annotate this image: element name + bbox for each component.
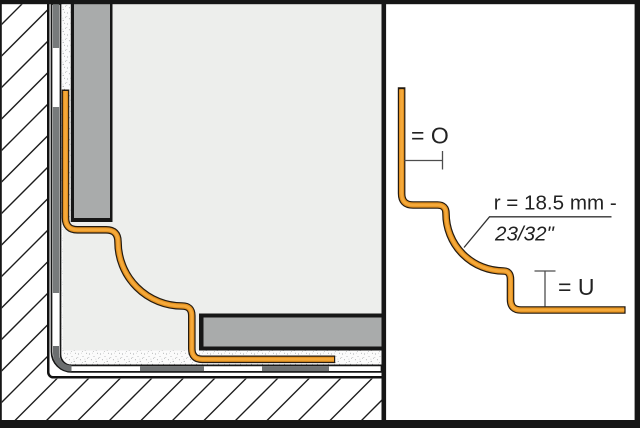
- svg-text:23/32": 23/32": [494, 222, 556, 245]
- svg-text:= O: = O: [411, 122, 449, 148]
- svg-text:r = 18.5 mm -: r = 18.5 mm -: [494, 192, 617, 215]
- svg-text:= U: = U: [558, 274, 594, 300]
